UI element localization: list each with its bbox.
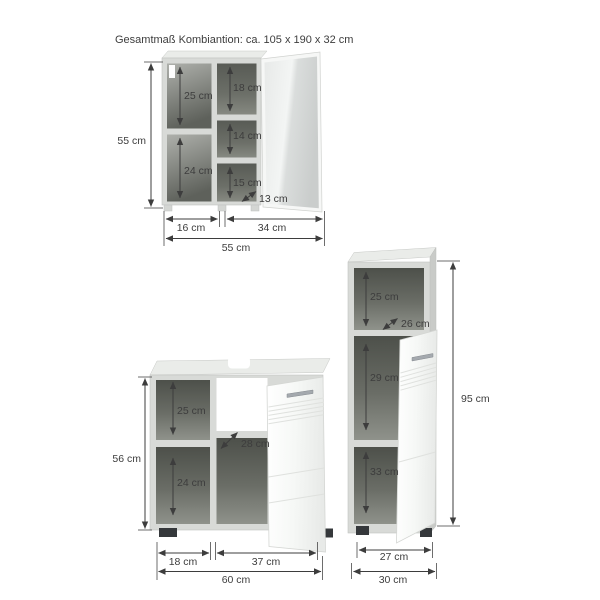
- vanity-compartment-middle-bottom: [217, 438, 268, 524]
- vanity-foot: [159, 528, 177, 537]
- mirror-left-bottom-label: 24 cm: [184, 165, 213, 177]
- mirror-cabinet-leg: [218, 205, 226, 211]
- vanity-width-total-label: 60 cm: [222, 574, 251, 586]
- vanity-height-label: 56 cm: [112, 453, 141, 465]
- diagram-canvas: Gesamtmaß Kombiantion: ca. 105 x 190 x 3…: [0, 0, 600, 600]
- vanity-depth-label: 28 cm: [241, 438, 270, 450]
- tall-width-total-label: 30 cm: [379, 574, 408, 586]
- tall-door: [397, 330, 438, 543]
- vanity-siphon-cutout: [228, 357, 250, 369]
- mirror-cabinet-top-face: [162, 51, 267, 58]
- tall-height-label: 95 cm: [461, 393, 490, 405]
- mirror-cabinet-leg: [164, 205, 172, 211]
- mirror-cabinet: 55 cm 25 cm 24 cm 18 cm 14 cm 15 cm 13 c…: [117, 51, 324, 254]
- vanity-left-bottom-label: 24 cm: [177, 477, 206, 489]
- vanity-width-right-label: 37 cm: [252, 556, 281, 568]
- tall-cabinet: 95 cm 25 cm 26 cm 29 cm 33 cm 27 cm 30 c…: [348, 248, 490, 587]
- mirror-cabinet-hinge-detail: [169, 65, 175, 78]
- dimension-diagram: Gesamtmaß Kombiantion: ca. 105 x 190 x 3…: [0, 0, 600, 600]
- vanity-left-top-label: 25 cm: [177, 405, 206, 417]
- mirror-right-middle-label: 14 cm: [233, 130, 262, 142]
- mirror-width-right-label: 34 cm: [258, 222, 287, 234]
- tall-width-inner-label: 27 cm: [380, 551, 409, 563]
- mirror-right-top-label: 18 cm: [233, 82, 262, 94]
- mirror-door-glass: [265, 57, 319, 209]
- tall-bottom-label: 33 cm: [370, 466, 399, 478]
- tall-door-panel: [397, 330, 438, 543]
- tall-middle-label: 29 cm: [370, 372, 399, 384]
- tall-depth-label: 26 cm: [401, 318, 430, 330]
- mirror-depth-label: 13 cm: [259, 193, 288, 205]
- mirror-height-label: 55 cm: [117, 135, 146, 147]
- vanity-sink-opening: [217, 378, 268, 431]
- vanity-cabinet: 56 cm 25 cm 24 cm 28 cm 18 cm 37 cm 60 c…: [112, 357, 333, 587]
- mirror-width-left-label: 16 cm: [177, 222, 206, 234]
- mirror-right-bottom-label: 15 cm: [233, 177, 262, 189]
- vanity-door: [267, 377, 326, 552]
- tall-top-label: 25 cm: [370, 291, 399, 303]
- mirror-left-top-label: 25 cm: [184, 90, 213, 102]
- mirror-door: [261, 52, 322, 212]
- tall-top-face: [348, 248, 436, 263]
- tall-foot: [356, 526, 369, 535]
- page-title: Gesamtmaß Kombiantion: ca. 105 x 190 x 3…: [115, 34, 353, 46]
- mirror-width-total-label: 55 cm: [222, 242, 251, 254]
- vanity-width-left-label: 18 cm: [169, 556, 198, 568]
- mirror-cabinet-leg: [251, 205, 259, 211]
